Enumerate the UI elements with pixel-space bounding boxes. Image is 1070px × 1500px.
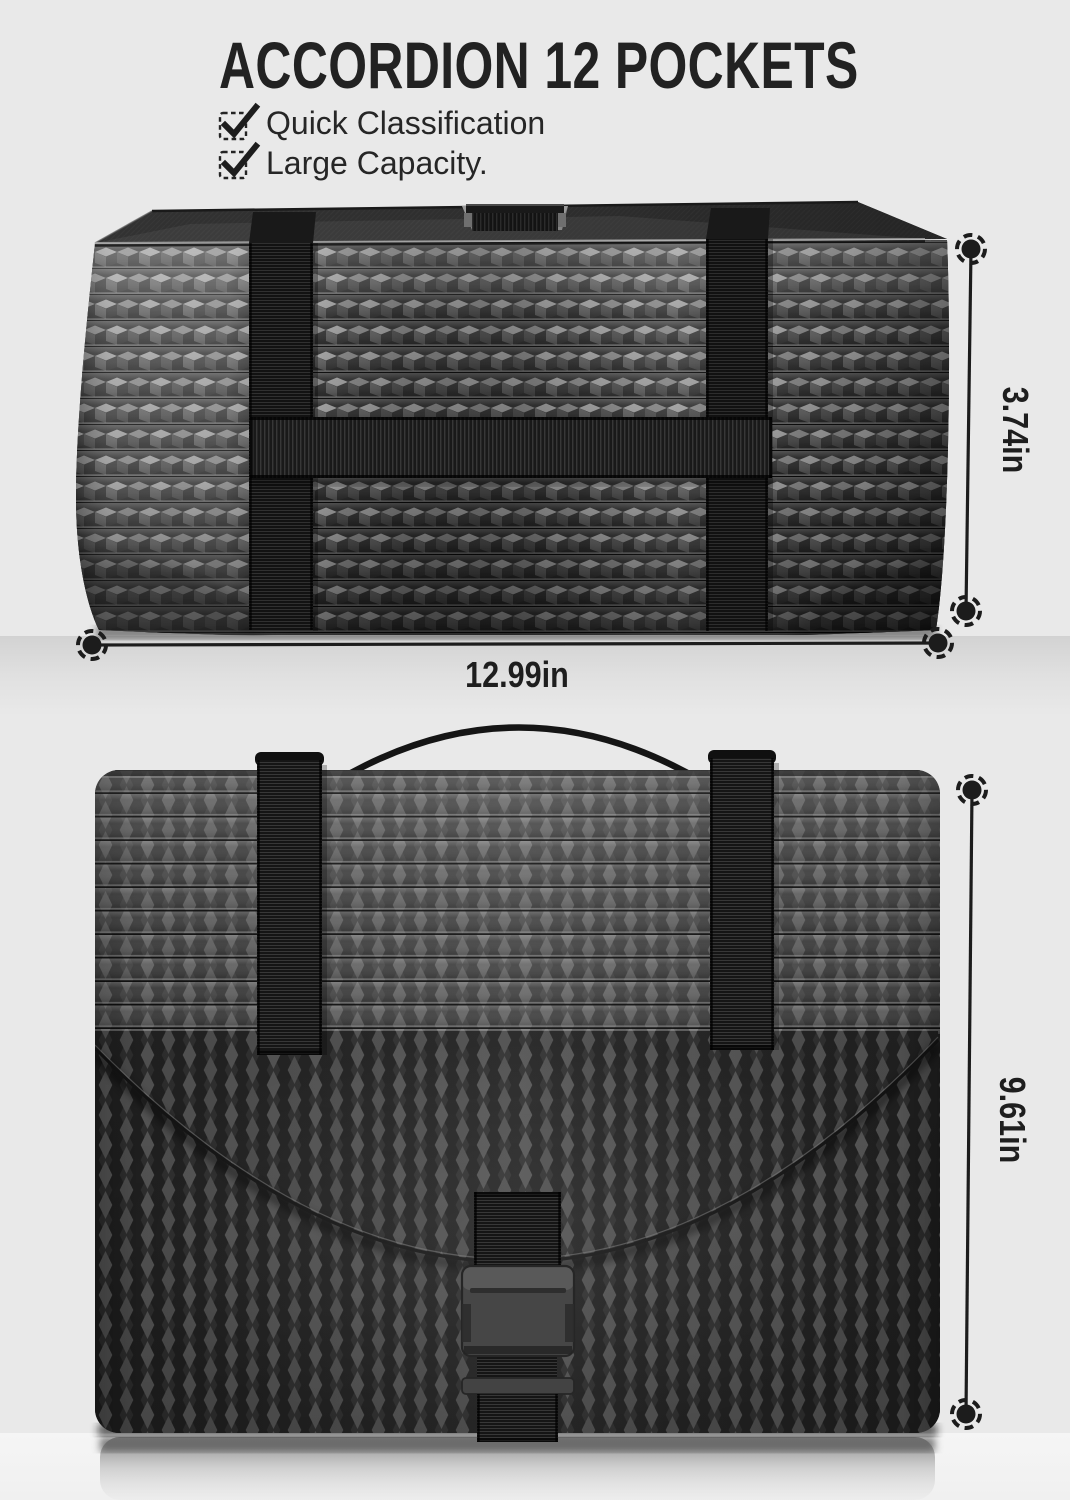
svg-text:3.74in: 3.74in	[994, 387, 1034, 474]
svg-text:9.61in: 9.61in	[991, 1077, 1031, 1164]
svg-text:12.99in: 12.99in	[465, 656, 569, 696]
